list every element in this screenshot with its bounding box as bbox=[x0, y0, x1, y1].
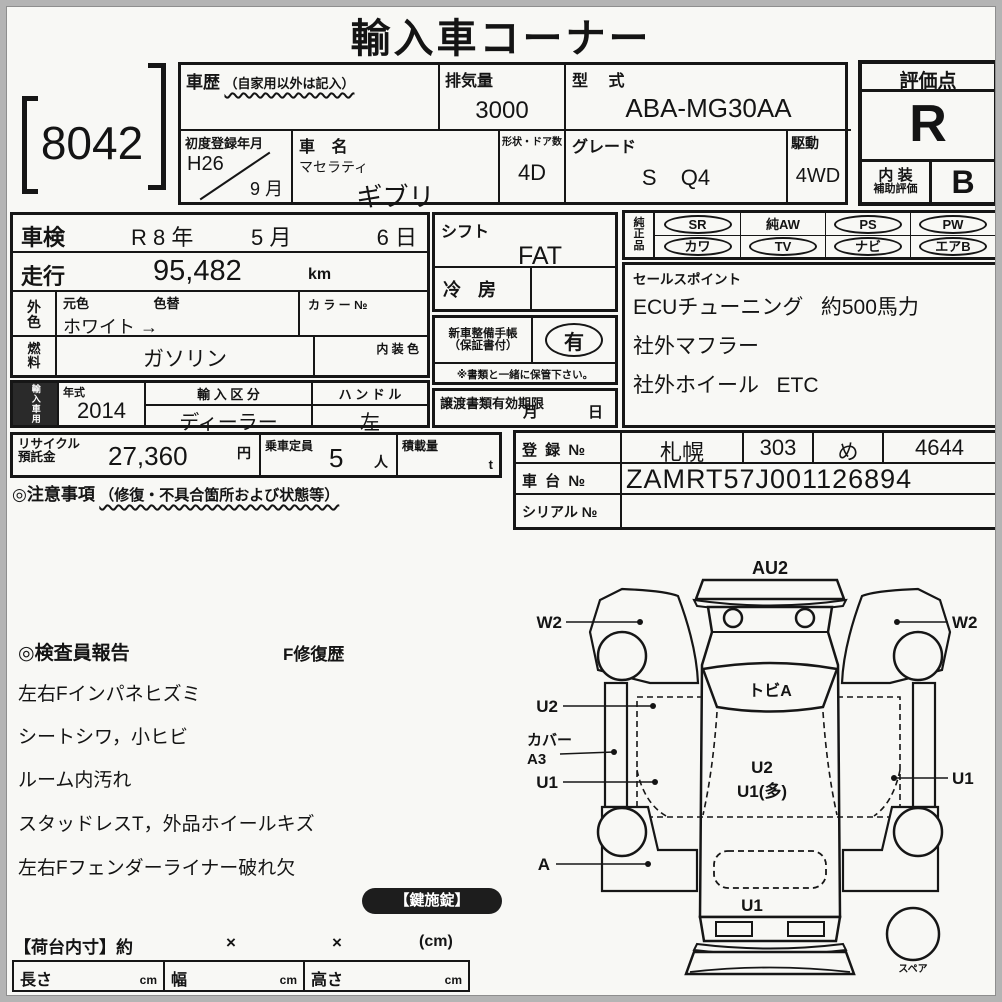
report-line: スタッドレスT，外品ホイールキズ bbox=[18, 809, 488, 836]
year-value: 2014 bbox=[63, 398, 140, 424]
right-sill bbox=[913, 683, 935, 807]
diagram-label-a3: A3 bbox=[527, 751, 546, 768]
service-book-label: 新車整備手帳 （保証書付） bbox=[435, 318, 533, 362]
color-value: ホワイト → bbox=[63, 313, 292, 339]
equipment-pw: PW bbox=[910, 213, 995, 235]
capacity-unit: 人 bbox=[374, 452, 388, 472]
displacement-label: 排気量 bbox=[445, 67, 559, 91]
handle-label: ハ ン ド ル bbox=[313, 384, 427, 406]
displacement-value: 3000 bbox=[445, 97, 559, 125]
service-book-value-cell: 有 bbox=[533, 318, 615, 362]
wheel-front-left bbox=[598, 632, 646, 680]
drive-cell: 駆動 4WD bbox=[788, 131, 848, 205]
width-cell: 幅 cm bbox=[165, 962, 305, 990]
shift-label: シフト bbox=[441, 224, 489, 241]
mileage-label: 走行 bbox=[21, 259, 65, 291]
diagram-label-u1-right: U1 bbox=[952, 769, 974, 788]
sales-points-box: セールスポイント ECUチューニング 約500馬力 社外マフラー 社外ホイール … bbox=[622, 262, 998, 428]
capacity-cell: 乗車定員 5 人 bbox=[261, 435, 398, 475]
sales-points-label: セールスポイント bbox=[633, 268, 987, 288]
first-registration-label: 初度登録年月 bbox=[185, 133, 287, 152]
import-label: 輸入車用 bbox=[13, 383, 59, 425]
equipment-kawa: カワ bbox=[655, 235, 740, 257]
route-label: 輸 入 区 分 bbox=[146, 384, 311, 406]
recycle-value: 27,360 bbox=[108, 441, 188, 472]
recycle-box: リサイクル 預託金 27,360 円 乗車定員 5 人 積載量 t bbox=[10, 432, 502, 478]
grade-value: S Q4 bbox=[572, 165, 780, 191]
load-cell: 積載量 t bbox=[398, 435, 499, 475]
width-unit: cm bbox=[280, 973, 297, 987]
drive-value: 4WD bbox=[791, 165, 845, 188]
reg-no-label: 登 録 № bbox=[516, 433, 622, 462]
history-label: 車歴 bbox=[186, 73, 220, 92]
wheel-rear-left bbox=[598, 808, 646, 856]
car-damage-diagram: AU2 W2 W2 トビA U2 カバー A3 U1 U1 U2 U1(多) A… bbox=[520, 550, 1002, 1002]
diagram-label-a-left: A bbox=[538, 855, 550, 874]
fuel-row: 燃 料 ガソリン 内 装 色 bbox=[13, 337, 427, 375]
height-cell: 高さ cm bbox=[305, 962, 468, 990]
diagram-label-center-u1: U1(多) bbox=[737, 781, 787, 801]
first-registration-month: 9 月 bbox=[250, 175, 283, 201]
service-book-box: 新車整備手帳 （保証書付） 有 ※書類と一緒に保管下さい。 bbox=[432, 315, 618, 385]
book-note: ※書類と一緒に保管下さい。 bbox=[435, 362, 615, 382]
length-label: 長さ bbox=[14, 962, 58, 994]
headlight-right bbox=[796, 609, 814, 627]
inspector-report: ◎検査員報告 F修復歴 左右Fインパネヒズミ シートシワ，小ヒビ ルーム内汚れ … bbox=[18, 638, 488, 880]
equipment-box: 純 正 品 SR 純AW PS PW カワ TV ナビ エアB bbox=[622, 210, 998, 260]
tail-light-right bbox=[788, 922, 824, 936]
color-row: 外 色 元色 色替 ホワイト → カ ラ ー № bbox=[13, 292, 427, 337]
equipment-navi: ナビ bbox=[825, 235, 910, 257]
history-note: （自家用以外は記入） bbox=[224, 76, 354, 91]
caution-title: ◎注意事項 bbox=[12, 485, 95, 504]
width-label: 幅 bbox=[165, 962, 193, 994]
diagram-label-u2-left: U2 bbox=[536, 697, 558, 716]
color-orig-label: 元色 bbox=[63, 296, 89, 311]
interior-color-label: 内 装 色 bbox=[315, 337, 427, 375]
color-value-cell: 元色 色替 ホワイト → bbox=[57, 292, 300, 337]
equipment-sr: SR bbox=[655, 213, 740, 235]
aircon-value bbox=[532, 268, 615, 309]
first-registration-cell: 初度登録年月 H26 9 月 bbox=[181, 131, 293, 205]
handle-cell: ハ ン ド ル 左 bbox=[313, 383, 427, 425]
evaluation-score: R bbox=[862, 92, 994, 159]
aircon-label: 冷 房 bbox=[435, 268, 532, 309]
bottom-partial-box bbox=[12, 996, 470, 1002]
diagram-label-u1-left: U1 bbox=[536, 773, 558, 792]
chassis-no-value: ZAMRT57J001126894 bbox=[622, 464, 995, 493]
height-label: 高さ bbox=[305, 962, 349, 994]
left-sill bbox=[605, 683, 627, 807]
model-code-label: 型 式 bbox=[572, 67, 845, 91]
equipment-tv: TV bbox=[740, 235, 825, 257]
capacity-label: 乗車定員 bbox=[265, 437, 313, 454]
shift-aircon-box: シフト FAT 冷 房 bbox=[432, 212, 618, 312]
front-bumper bbox=[696, 580, 844, 599]
wheel-front-right bbox=[894, 632, 942, 680]
car-maker: マセラティ bbox=[299, 157, 492, 177]
recycle-label: リサイクル 預託金 bbox=[18, 438, 80, 464]
cargo-unit: (cm) bbox=[419, 933, 453, 951]
color-change-label: 色替 bbox=[153, 296, 179, 311]
load-unit: t bbox=[489, 457, 493, 472]
grade-label: グレード bbox=[572, 133, 780, 157]
transfer-month: 月 bbox=[523, 401, 538, 422]
route-value: ディーラー bbox=[150, 406, 307, 435]
first-registration-year: H26 bbox=[187, 153, 224, 176]
shift-cell: シフト FAT bbox=[435, 215, 615, 268]
report-title: ◎検査員報告 bbox=[18, 643, 130, 664]
equipment-label: 純 正 品 bbox=[625, 213, 655, 257]
car-model-name: ギブリ bbox=[299, 177, 492, 214]
car-name-cell: 車 名 マセラティ ギブリ bbox=[293, 131, 500, 205]
vehicle-info-box: 車検 R 8 年 5 月 6 日 走行 95,482 km 外 色 元色 色替 … bbox=[10, 212, 430, 378]
reg-class: 303 bbox=[744, 433, 814, 462]
headlight-left bbox=[724, 609, 742, 627]
registration-box: 登 録 № 札幌 303 め 4644 車 台 № ZAMRT57J001126… bbox=[513, 430, 998, 530]
recycle-cell: リサイクル 預託金 27,360 円 bbox=[13, 435, 261, 475]
serial-no-label: シリアル № bbox=[516, 495, 622, 527]
transfer-docs-box: 譲渡書類有効期限 月 日 bbox=[432, 388, 618, 428]
report-line: 左右Fインパネヒズミ bbox=[18, 679, 488, 706]
diagram-label-u1-rear: U1 bbox=[741, 896, 763, 915]
cargo-x1: × bbox=[226, 933, 236, 953]
model-code-value: ABA-MG30AA bbox=[572, 93, 845, 124]
reg-area: 札幌 bbox=[622, 433, 744, 462]
diagram-label-center-u2: U2 bbox=[751, 758, 773, 777]
exterior-color-label: 外 色 bbox=[13, 292, 57, 337]
diagram-label-windshield: トビA bbox=[748, 682, 792, 700]
cargo-line: 【荷台内寸】約 × × (cm) bbox=[14, 933, 464, 957]
sales-point-line: 社外ホイール ETC bbox=[633, 369, 987, 399]
wheel-rear-right bbox=[894, 808, 942, 856]
equipment-aw: 純AW bbox=[740, 213, 825, 235]
shift-value: FAT bbox=[441, 242, 609, 271]
import-route-cell: 輸 入 区 分 ディーラー bbox=[146, 383, 313, 425]
shaken-label: 車検 bbox=[21, 220, 65, 252]
model-code-cell: 型 式 ABA-MG30AA bbox=[566, 65, 851, 131]
handle-value: 左 bbox=[317, 406, 423, 435]
serial-no-value bbox=[622, 495, 995, 527]
diagram-label-spare: スペア bbox=[898, 963, 927, 975]
auction-sheet: 輸入車コーナー 8042 車歴 （自家用以外は記入） 排気量 3000 型 式 … bbox=[0, 0, 1002, 1002]
recycle-unit: 円 bbox=[237, 443, 251, 463]
fuel-value: ガソリン bbox=[57, 337, 315, 375]
chassis-no-label: 車 台 № bbox=[516, 464, 622, 493]
cargo-label: 【荷台内寸】約 bbox=[14, 933, 133, 958]
sales-point-line: ECUチューニング 約500馬力 bbox=[633, 291, 987, 321]
fuel-label: 燃 料 bbox=[13, 337, 57, 375]
load-label: 積載量 bbox=[402, 437, 438, 454]
spare-tire bbox=[887, 908, 939, 960]
displacement-cell: 排気量 3000 bbox=[440, 65, 566, 131]
evaluation-box: 評価点 R 内 装 補助評価 B bbox=[858, 60, 998, 206]
caution-note: （修復・不具合箇所および状態等） bbox=[99, 487, 339, 504]
lot-bracket-right bbox=[148, 63, 166, 190]
service-book-value: 有 bbox=[545, 323, 603, 357]
sales-point-line: 社外マフラー bbox=[633, 330, 987, 360]
doors-cell: 形状・ドア数 4D bbox=[500, 131, 566, 205]
mileage-row: 走行 95,482 km bbox=[13, 253, 427, 292]
car-name-label: 車 名 bbox=[299, 139, 353, 156]
size-table: 長さ cm 幅 cm 高さ cm bbox=[12, 960, 470, 992]
report-line: 左右Fフェンダーライナー破れ欠 bbox=[18, 853, 488, 880]
evaluation-label: 評価点 bbox=[862, 64, 994, 92]
length-unit: cm bbox=[140, 973, 157, 987]
height-unit: cm bbox=[445, 973, 462, 987]
serial-row: シリアル № bbox=[516, 495, 995, 527]
mileage-unit: km bbox=[308, 266, 331, 284]
key-lock-badge: 【鍵施錠】 bbox=[362, 888, 502, 914]
equipment-airbag: エアB bbox=[910, 235, 995, 257]
transfer-day: 日 bbox=[588, 401, 603, 422]
caution-line: ◎注意事項 （修復・不具合箇所および状態等） bbox=[12, 480, 339, 505]
repair-history: F修復歴 bbox=[283, 640, 344, 665]
cargo-x2: × bbox=[332, 933, 342, 953]
diagram-label-w2-left: W2 bbox=[537, 613, 563, 632]
grade-cell: グレード S Q4 bbox=[566, 131, 788, 205]
registration-row: 登 録 № 札幌 303 め 4644 bbox=[516, 433, 995, 464]
capacity-value: 5 bbox=[329, 443, 343, 474]
interior-eval-label: 内 装 補助評価 bbox=[862, 162, 932, 202]
shaken-day: 6 日 bbox=[377, 220, 417, 252]
page-title: 輸入車コーナー bbox=[0, 6, 1002, 64]
doors-label: 形状・ドア数 bbox=[501, 133, 563, 148]
shaken-row: 車検 R 8 年 5 月 6 日 bbox=[13, 215, 427, 253]
report-line: ルーム内汚れ bbox=[18, 765, 488, 792]
shaken-month: 5 月 bbox=[251, 220, 291, 252]
chassis-row: 車 台 № ZAMRT57J001126894 bbox=[516, 464, 995, 495]
diagram-label-cover: カバー bbox=[527, 732, 572, 749]
report-line: シートシワ，小ヒビ bbox=[18, 722, 488, 749]
interior-eval-score: B bbox=[932, 162, 994, 202]
tail-light-left bbox=[716, 922, 752, 936]
drive-label: 駆動 bbox=[791, 133, 845, 153]
reg-kana: め bbox=[814, 433, 884, 462]
diagram-label-au2: AU2 bbox=[752, 558, 788, 578]
reg-number: 4644 bbox=[884, 433, 995, 462]
mileage-value: 95,482 bbox=[153, 255, 242, 288]
year-cell: 年式 2014 bbox=[59, 383, 146, 425]
shaken-year: R 8 年 bbox=[131, 220, 193, 252]
color-no-label: カ ラ ー № bbox=[300, 292, 427, 337]
equipment-grid: SR 純AW PS PW カワ TV ナビ エアB bbox=[655, 213, 995, 257]
length-cell: 長さ cm bbox=[14, 962, 165, 990]
lot-number: 8042 bbox=[36, 116, 148, 170]
doors-value: 4D bbox=[501, 160, 563, 186]
import-box: 輸入車用 年式 2014 輸 入 区 分 ディーラー ハ ン ド ル 左 bbox=[10, 380, 430, 428]
header-grid: 車歴 （自家用以外は記入） 排気量 3000 型 式 ABA-MG30AA 初度… bbox=[178, 62, 848, 205]
history-cell: 車歴 （自家用以外は記入） bbox=[181, 65, 440, 131]
diagram-label-w2-right: W2 bbox=[952, 613, 978, 632]
equipment-ps: PS bbox=[825, 213, 910, 235]
